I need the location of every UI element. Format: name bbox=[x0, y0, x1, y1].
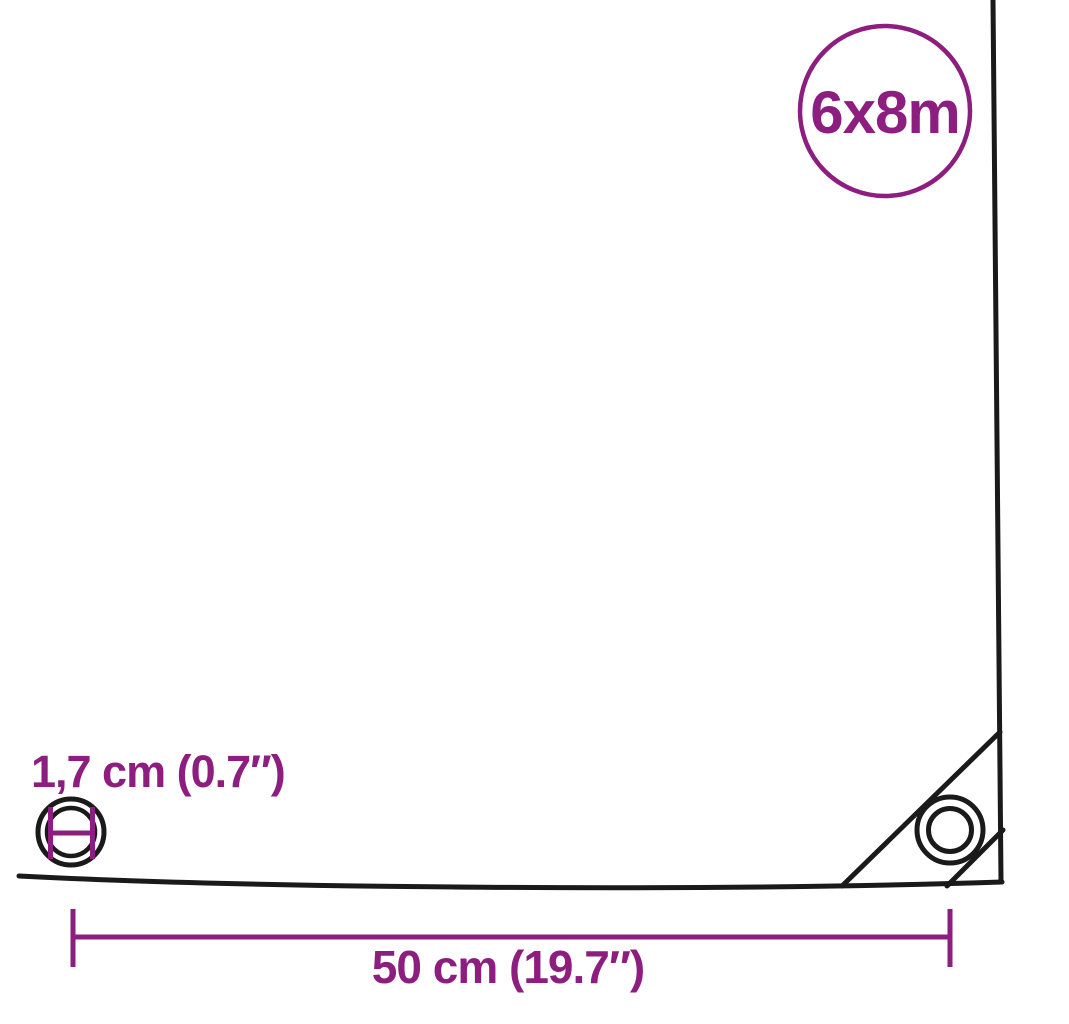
eyelet-diameter-label: 1,7 cm (0.7″) bbox=[31, 749, 285, 794]
corner-fold-line-inner bbox=[947, 830, 1003, 886]
diagram-artwork bbox=[0, 0, 1069, 1024]
size-badge-label: 6x8m bbox=[810, 83, 959, 143]
tarp-dimension-diagram: 6x8m 1,7 cm (0.7″) 50 cm (19.7″) bbox=[0, 0, 1069, 1024]
eyelet-diameter-icon bbox=[38, 799, 104, 865]
tarp-right-edge bbox=[993, 0, 1001, 881]
eyelet-spacing-label: 50 cm (19.7″) bbox=[372, 944, 644, 990]
tarp-bottom-edge bbox=[19, 876, 1002, 888]
corner-eyelet-icon bbox=[917, 797, 983, 863]
corner-eyelet-inner-ring bbox=[929, 809, 972, 852]
